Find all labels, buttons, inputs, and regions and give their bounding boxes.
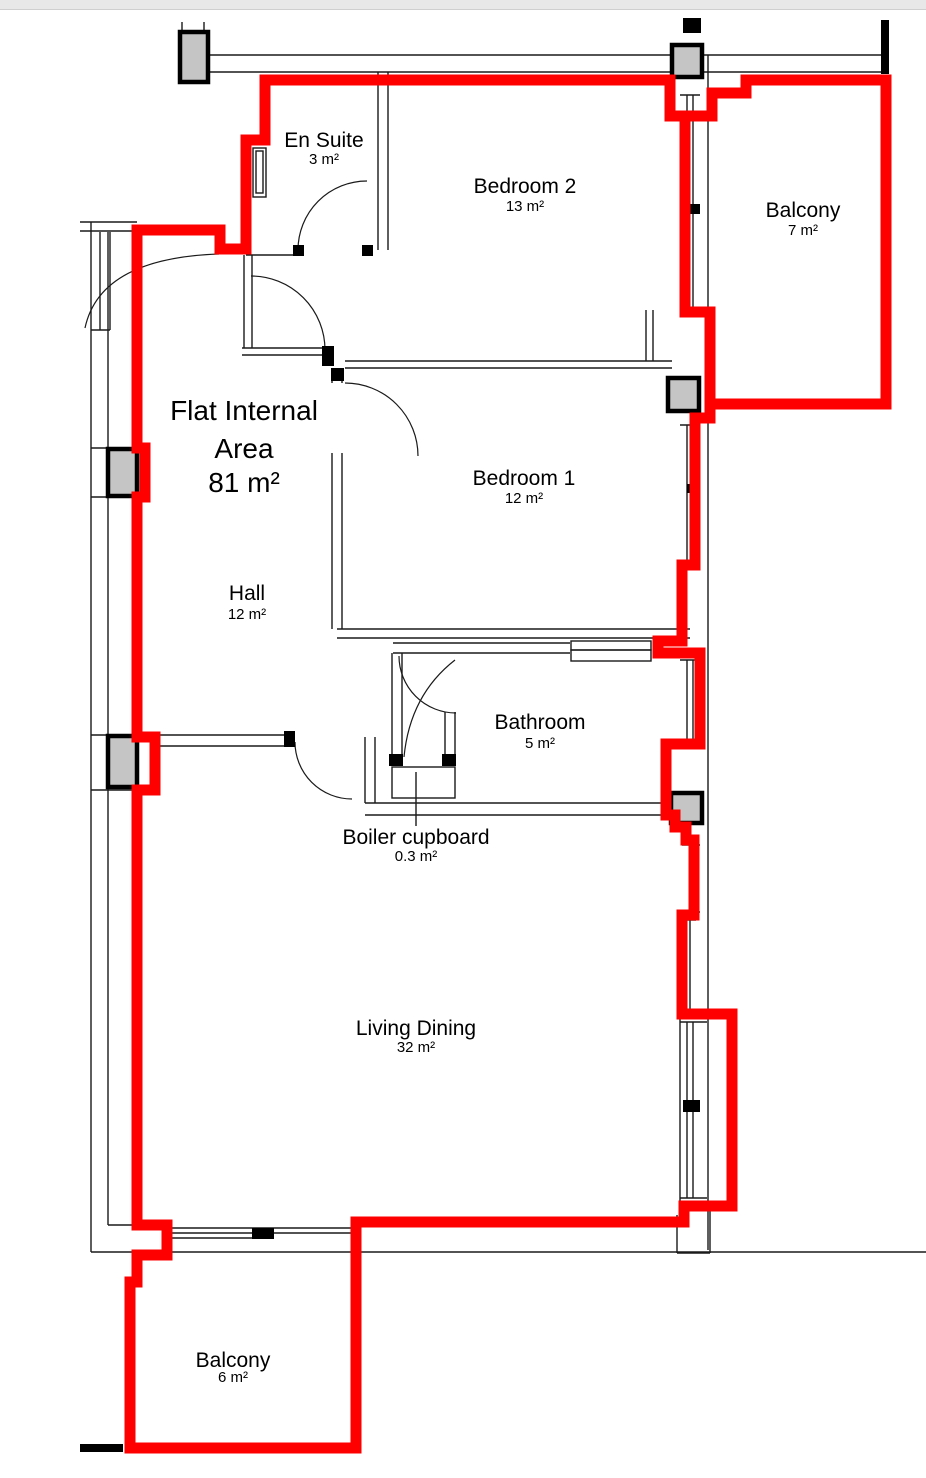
room-area-en-suite: 3 m²	[309, 152, 339, 169]
flat-area-title-value: 81 m²	[208, 468, 280, 499]
door-jamb	[284, 731, 295, 747]
door-jamb	[389, 754, 403, 766]
column	[180, 32, 208, 82]
door-jamb	[442, 754, 456, 766]
party-wall-bar	[80, 1444, 123, 1452]
floorplan-page: Flat Internal Area 81 m² En Suite 3 m² B…	[0, 0, 926, 1478]
room-label-boiler-cupboard: Boiler cupboard	[342, 826, 489, 849]
slider-interlock	[252, 1228, 274, 1239]
room-area-hall: 12 m²	[228, 607, 266, 624]
columns	[108, 32, 702, 823]
room-label-en-suite: En Suite	[284, 129, 363, 152]
bedroom1-door-arc	[345, 383, 418, 456]
room-area-living-dining: 32 m²	[397, 1040, 435, 1057]
room-area-balcony-bottom: 6 m²	[218, 1370, 248, 1387]
room-area-bathroom: 5 m²	[525, 736, 555, 753]
door-jamb	[293, 245, 304, 256]
flat-internal-outline	[130, 80, 732, 1448]
entrance-door-arc	[85, 254, 219, 328]
bathroom-door-arc	[399, 656, 456, 713]
room-area-bedroom-2: 13 m²	[506, 199, 544, 216]
column	[672, 45, 702, 77]
room-label-bathroom: Bathroom	[494, 711, 585, 734]
flat-area-title-line2: Area	[214, 434, 273, 465]
column	[668, 378, 699, 411]
column	[108, 449, 137, 496]
room-label-hall: Hall	[229, 582, 265, 605]
room-label-bedroom-2: Bedroom 2	[474, 175, 577, 198]
bedroom2-door-arc	[251, 276, 325, 350]
door-jamb	[362, 245, 373, 256]
room-area-boiler-cupboard: 0.3 m²	[395, 849, 438, 866]
flat-area-title-line1: Flat Internal	[170, 396, 318, 427]
hall-living-door-arc	[295, 742, 352, 799]
cupboard-door-arc	[404, 660, 455, 757]
window-head-hatch	[683, 18, 701, 33]
room-label-balcony-top: Balcony	[766, 199, 841, 222]
window-mullion	[683, 1100, 700, 1112]
door-jamb	[322, 346, 334, 366]
column	[108, 736, 137, 787]
room-area-bedroom-1: 12 m²	[505, 491, 543, 508]
ensuite-door-arc	[298, 181, 367, 250]
door-jamb	[331, 368, 344, 381]
room-label-living-dining: Living Dining	[356, 1017, 476, 1040]
room-area-balcony-top: 7 m²	[788, 223, 818, 240]
wall-end-bar	[881, 20, 889, 74]
room-label-bedroom-1: Bedroom 1	[473, 467, 576, 490]
